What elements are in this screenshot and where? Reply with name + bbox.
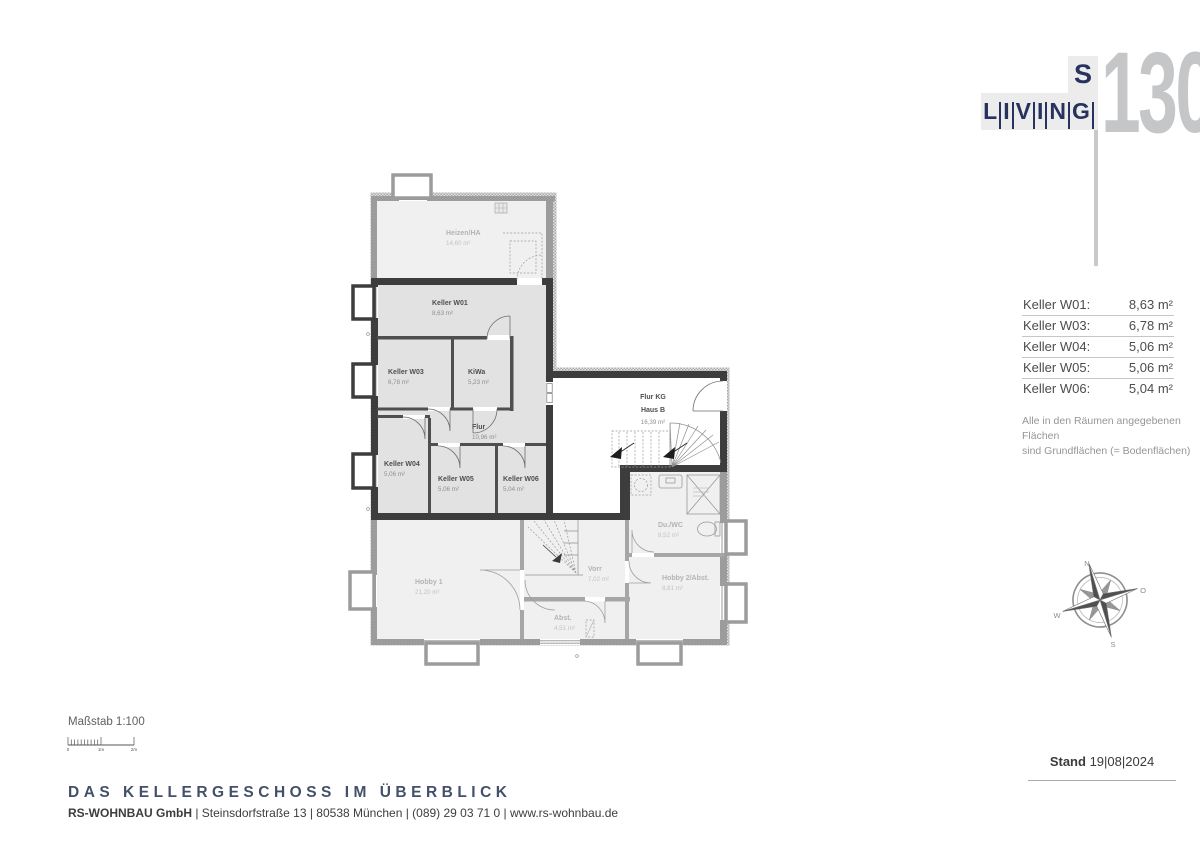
room-label-flur-kg: Haus B	[641, 407, 665, 414]
area-legend-table: Keller W01:8,63 m²Keller W03:6,78 m²Kell…	[1022, 295, 1174, 399]
room-label-hobby1: Hobby 1	[415, 579, 443, 586]
logo-s-badge: S	[1068, 56, 1098, 93]
room-label-keller-w04: 5,06 m²	[384, 471, 405, 478]
legend-room-area: 8,63 m²	[1129, 297, 1173, 312]
room-label-heizen: Heizen/HA	[446, 230, 481, 237]
room-label-keller-w05: 5,06 m²	[438, 486, 459, 493]
legend-row: Keller W03:6,78 m²	[1022, 315, 1174, 336]
room-label-keller-w04: Keller W04	[384, 461, 420, 468]
compass-star	[1051, 551, 1148, 648]
stand-date: Stand 19|08|2024	[1028, 754, 1176, 781]
logo-letter: N	[1049, 100, 1066, 123]
logo-s-text: S	[1074, 59, 1092, 90]
page: S LIVING 130 Keller W01:8,63 m²Keller W0…	[0, 0, 1200, 849]
legend-note-line1: Alle in den Räumen angegebenen Flächen	[1022, 414, 1192, 444]
company-address: | Steinsdorfstraße 13 | 80538 München | …	[195, 806, 618, 820]
logo-letter-bar	[1012, 102, 1014, 129]
compass-label-o: O	[1140, 586, 1146, 595]
room-label-heizen: 14,60 m²	[446, 240, 470, 247]
logo-letter-bar	[1068, 102, 1070, 129]
logo-letter: G	[1072, 100, 1090, 123]
room-label-keller-w03: Keller W03	[388, 369, 424, 376]
room-label-flur-kg: Flur KG	[640, 394, 666, 401]
room-label-hobby2: Hobby 2/Abst.	[662, 575, 709, 582]
legend-room-label: Keller W01:	[1023, 297, 1090, 312]
compass-label-w: W	[1053, 611, 1061, 620]
legend-room-area: 5,04 m²	[1129, 381, 1173, 396]
room-label-keller-w06: 5,04 m²	[503, 486, 524, 493]
room-label-hobby2: 8,81 m²	[662, 585, 683, 592]
legend-room-label: Keller W03:	[1023, 318, 1090, 333]
legend-row: Keller W06:5,04 m²	[1022, 378, 1174, 399]
scale-tick-1m: 1m	[98, 747, 105, 752]
logo-living-wordmark: LIVING	[981, 93, 1098, 130]
logo-letter: I	[1037, 100, 1043, 123]
logo-letter-bar	[1092, 102, 1094, 129]
legend-room-label: Keller W04:	[1023, 339, 1090, 354]
legend-room-label: Keller W05:	[1023, 360, 1090, 375]
room-label-keller-w01: Keller W01	[432, 300, 468, 307]
compass-label-s: S	[1110, 640, 1115, 649]
legend-room-area: 5,06 m²	[1129, 339, 1173, 354]
logo-letter: V	[1016, 100, 1031, 123]
scale-tick-2m: 2m	[131, 747, 138, 752]
room-label-keller-w03: 6,78 m²	[388, 379, 409, 386]
scale-bar: 0 1m 2m	[66, 735, 144, 755]
legend-row: Keller W04:5,06 m²	[1022, 336, 1174, 357]
room-label-vorr: Vorr	[588, 566, 602, 573]
stand-label: Stand	[1050, 754, 1086, 769]
legend-room-area: 6,78 m²	[1129, 318, 1173, 333]
room-label-du-wc: 8,52 m²	[658, 532, 679, 539]
room-label-hobby1: 21,20 m²	[415, 589, 439, 596]
legend-room-area: 5,06 m²	[1129, 360, 1173, 375]
logo-letter-bar	[1033, 102, 1035, 129]
room-label-du-wc: Du./WC	[658, 522, 683, 529]
scale-tick-0: 0	[67, 747, 70, 752]
room-label-keller-w05: Keller W05	[438, 476, 474, 483]
room-label-kiwa: 5,23 m²	[468, 379, 489, 386]
logo-letter-bar	[1045, 102, 1047, 129]
page-title: DAS KELLERGESCHOSS IM ÜBERBLICK	[68, 784, 512, 802]
area-legend-note: Alle in den Räumen angegebenen Flächen s…	[1022, 414, 1192, 459]
company-name: RS-WOHNBAU GmbH	[68, 806, 192, 820]
compass-label-n: N	[1084, 559, 1089, 568]
logo-number: 130	[1101, 36, 1200, 151]
legend-note-line2: sind Grundflächen (= Bodenflächen)	[1022, 444, 1192, 459]
room-label-keller-w01: 8,63 m²	[432, 310, 453, 317]
compass-rose: N O S W	[1050, 550, 1150, 650]
scale-label: Maßstab 1:100	[68, 716, 145, 728]
legend-row: Keller W05:5,06 m²	[1022, 357, 1174, 378]
room-label-keller-w06: Keller W06	[503, 476, 539, 483]
room-label-abst: 4,51 m²	[554, 625, 575, 632]
floor-plan: Heizen/HA14,60 m²Keller W018,63 m²Keller…	[340, 165, 770, 685]
room-label-vorr: 7,02 m²	[588, 576, 609, 583]
legend-row: Keller W01:8,63 m²	[1022, 295, 1174, 315]
room-label-flur: 10,96 m²	[472, 434, 496, 441]
room-label-kiwa: KiWa	[468, 369, 485, 376]
company-address-line: RS-WOHNBAU GmbH | Steinsdorfstraße 13 | …	[68, 806, 618, 820]
room-label-abst: Abst.	[554, 615, 572, 622]
stand-value: 19|08|2024	[1090, 754, 1155, 769]
logo-letter: I	[1003, 100, 1009, 123]
logo-letter-bar	[999, 102, 1001, 129]
logo-letter: L	[983, 100, 997, 123]
room-label-flur: Flur	[472, 424, 485, 431]
legend-room-label: Keller W06:	[1023, 381, 1090, 396]
room-label-flur-kg: 16,39 m²	[641, 419, 665, 426]
